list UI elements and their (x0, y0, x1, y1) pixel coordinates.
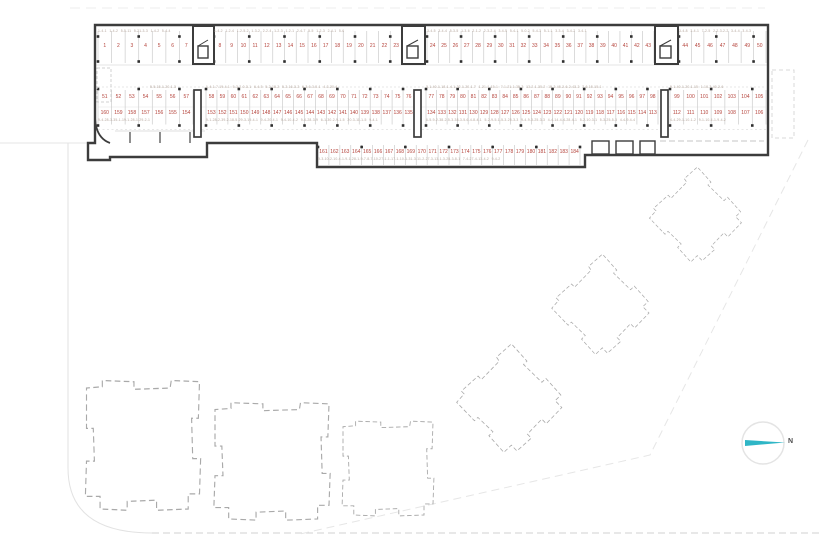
stall-number: 93 (595, 93, 606, 102)
column-dot (178, 35, 181, 38)
stall-number: 33 (529, 42, 540, 51)
stall-number: 3 (125, 42, 139, 51)
column-dot (402, 124, 405, 127)
parking-group: 2425262728293031323334353637383940414243 (427, 42, 654, 51)
stall-number: 137 (381, 109, 392, 118)
column-dot (178, 60, 181, 63)
stall-number: 149 (250, 109, 261, 118)
stall-number: 23 (390, 42, 402, 51)
column-dot (715, 35, 718, 38)
stall-number: 1 (98, 42, 112, 51)
stall-number: 99 (670, 93, 684, 102)
stall-number: 172 (438, 148, 449, 157)
stall-number: 6 (166, 42, 180, 51)
stall-number: 69 (326, 93, 337, 102)
column-dot (97, 124, 100, 127)
stall-number: 31 (506, 42, 517, 51)
column-dot (97, 60, 100, 63)
stall-number: 5 (152, 42, 166, 51)
site-plan: 1-4-1 1-4-2 5-5-11 5-21-3-3 1-4-2 5-4-4 … (0, 0, 825, 540)
column-dot (137, 60, 140, 63)
building-outline-1 (85, 380, 200, 510)
unit-codes-band: 5-5-15-1-20-1-3 (150, 85, 195, 90)
parking-group: 58596061626364656667686970717273747576 (206, 93, 414, 102)
stall-number: 171 (427, 148, 438, 157)
stall-number: 183 (558, 148, 569, 157)
stall-number: 94 (605, 93, 616, 102)
stall-number: 153 (206, 109, 217, 118)
stall-number: 114 (637, 109, 648, 118)
stall-number: 62 (250, 93, 261, 102)
column-dot (596, 35, 599, 38)
building-outline-5 (548, 253, 655, 360)
column-dot (248, 60, 251, 63)
stall-number: 170 (416, 148, 427, 157)
stall-number: 44 (679, 42, 691, 51)
stall-number: 19 (343, 42, 355, 51)
stall-number: 20 (355, 42, 367, 51)
stall-number: 61 (239, 93, 250, 102)
stall-number: 120 (574, 109, 585, 118)
stall-number: 53 (125, 93, 139, 102)
column-dot (615, 124, 618, 127)
stall-number: 22 (379, 42, 391, 51)
stall-number: 158 (125, 109, 139, 118)
stall-number: 129 (479, 109, 490, 118)
stall-number: 73 (370, 93, 381, 102)
north-label: N (788, 438, 793, 445)
unit-codes-band: 3-1-40-1-18-1-4-1-32-1-20-1-7 1-21-1-15-… (426, 85, 658, 90)
column-dot (389, 60, 392, 63)
stall-number: 87 (531, 93, 542, 102)
parking-group: 51525354555657 (98, 93, 193, 102)
stall-number: 25 (438, 42, 449, 51)
stall-number: 178 (504, 148, 515, 157)
parking-group: 891011121314151617181920212223 (214, 42, 402, 51)
stall-number: 150 (239, 109, 250, 118)
stall-number: 179 (515, 148, 526, 157)
parking-row-mid-lower: 160159158157156155154 153152151150149148… (0, 109, 825, 118)
stall-number: 98 (647, 93, 658, 102)
column-dot (715, 60, 718, 63)
stall-number: 49 (741, 42, 753, 51)
stall-number: 77 (426, 93, 437, 102)
stall-number: 176 (482, 148, 493, 157)
column-dot (137, 88, 140, 91)
parking-row-mid-upper: 51525354555657 5859606162636465666768697… (0, 93, 825, 102)
stall-number: 165 (362, 148, 373, 157)
column-dot (283, 35, 286, 38)
stall-number: 116 (616, 109, 627, 118)
stall-number: 160 (98, 109, 112, 118)
stall-number: 152 (217, 109, 228, 118)
stall-number: 111 (684, 109, 698, 118)
stall-number: 64 (272, 93, 283, 102)
stall-number: 107 (739, 109, 753, 118)
stall-number: 155 (166, 109, 180, 118)
stall-number: 70 (337, 93, 348, 102)
column-dot (669, 124, 672, 127)
column-dot (596, 60, 599, 63)
stall-number: 132 (447, 109, 458, 118)
stall-number: 174 (460, 148, 471, 157)
stall-number: 84 (500, 93, 511, 102)
stall-number: 36 (563, 42, 574, 51)
building-outline-2 (214, 403, 330, 520)
parking-group: 1611621631641651661671681691701711721731… (318, 148, 580, 157)
stall-number: 10 (238, 42, 250, 51)
column-dot (426, 35, 429, 38)
stall-number: 8 (214, 42, 226, 51)
stall-number: 56 (166, 93, 180, 102)
stall-number: 45 (691, 42, 703, 51)
stall-number: 145 (294, 109, 305, 118)
stall-number: 68 (316, 93, 327, 102)
column-dot (270, 124, 273, 127)
column-dot (283, 60, 286, 63)
stall-number: 39 (597, 42, 608, 51)
column-dot (97, 35, 100, 38)
stall-number: 123 (542, 109, 553, 118)
stall-number: 106 (752, 109, 766, 118)
stall-number: 151 (228, 109, 239, 118)
parking-group: 112111110109108107106 (670, 109, 766, 118)
column-dot (248, 35, 251, 38)
stall-number: 72 (359, 93, 370, 102)
stall-number: 161 (318, 148, 329, 157)
column-dot (178, 124, 181, 127)
stall-number: 37 (574, 42, 585, 51)
stall-number: 166 (373, 148, 384, 157)
stall-number: 15 (296, 42, 308, 51)
stall-number: 89 (553, 93, 564, 102)
column-dot (456, 124, 459, 127)
stall-number: 142 (326, 109, 337, 118)
unit-codes-band: 6-5-9-2-38-2-5-3-38-3-5-6-4-8-4-1 5-2-9-… (426, 118, 658, 123)
stall-number: 82 (479, 93, 490, 102)
stall-number: 78 (437, 93, 448, 102)
stall-number: 180 (526, 148, 537, 157)
stall-number: 83 (489, 93, 500, 102)
column-dot (630, 35, 633, 38)
stall-number: 167 (384, 148, 395, 157)
stall-number: 136 (392, 109, 403, 118)
stall-number: 173 (449, 148, 460, 157)
parking-row-bottom: 1611621631641651661671681691701711721731… (0, 148, 825, 157)
stall-number: 16 (308, 42, 320, 51)
stall-number: 86 (521, 93, 532, 102)
stall-number: 12 (261, 42, 273, 51)
column-dot (460, 35, 463, 38)
wall-ticks-left (130, 132, 190, 143)
stall-number: 104 (739, 93, 753, 102)
stall-number: 28 (472, 42, 483, 51)
unit-codes-band: 3-4-5 3-4-4 5-3-5 1-3-6 2-1-2 2-3-2-4 3-… (427, 29, 654, 34)
stall-number: 51 (98, 93, 112, 102)
north-arrow-icon (745, 440, 785, 446)
stall-number: 125 (521, 109, 532, 118)
unit-codes-band: 1-4-1 1-4-2 5-5-11 5-21-3-3 1-4-2 5-4-4 (98, 29, 193, 34)
stall-number: 32 (518, 42, 529, 51)
stall-number: 122 (553, 109, 564, 118)
stall-number: 168 (394, 148, 405, 157)
stall-number: 27 (461, 42, 472, 51)
unit-codes-band: 9-3-10-2-10-4-1-9-1-28-1-9-7-8-7-10-27-1… (318, 157, 580, 162)
stall-number: 117 (605, 109, 616, 118)
unit-codes-band: 9-4-28-3-35-1-19-1-28-1-29-2-1 (98, 118, 193, 123)
building-outlines (85, 166, 747, 520)
column-dot (520, 124, 523, 127)
stall-number: 14 (285, 42, 297, 51)
stall-number: 177 (493, 148, 504, 157)
stall-number: 95 (616, 93, 627, 102)
stall-number: 85 (510, 93, 521, 102)
stall-number: 175 (471, 148, 482, 157)
column-dot (710, 124, 713, 127)
stall-number: 59 (217, 93, 228, 102)
column-dot (562, 60, 565, 63)
stall-number: 52 (112, 93, 126, 102)
stall-number: 119 (584, 109, 595, 118)
stall-number: 24 (427, 42, 438, 51)
unit-codes-band: 1-4-1-7-19-4-1 5-3-2-0-3-1 6-4-5 5-2-18-… (206, 85, 414, 90)
column-dot (751, 124, 754, 127)
stall-number: 7 (179, 42, 193, 51)
parking-group: 1341331321311301291281271261251241231221… (426, 109, 658, 118)
parking-group: 1531521511501491481471461451441431421411… (206, 109, 414, 118)
stall-number: 109 (711, 109, 725, 118)
stall-number: 100 (684, 93, 698, 102)
unit-codes-band: 4-4-29-1-10-1-2 9-1-10-4-1-9-4-2 (670, 118, 766, 123)
unit-codes-band: 3-4-8 3-4-1 7-2-5 2-2-3-2-2 3-4-4 3-4-3 (679, 29, 766, 34)
stall-number: 128 (489, 109, 500, 118)
stall-number: 74 (381, 93, 392, 102)
stall-number: 47 (716, 42, 728, 51)
stall-number: 81 (468, 93, 479, 102)
stall-number: 13 (273, 42, 285, 51)
stall-number: 67 (305, 93, 316, 102)
stall-number: 80 (458, 93, 469, 102)
stall-number: 2 (112, 42, 126, 51)
stall-number: 79 (447, 93, 458, 102)
column-dot (528, 35, 531, 38)
unit-codes-band: 1-4-2 1-2-4 1-2-5-2 1-3-2 2-2-4 1-2-3 1-… (214, 29, 402, 34)
building-outline-4 (453, 343, 569, 459)
stall-number: 144 (305, 109, 316, 118)
stall-number: 58 (206, 93, 217, 102)
column-dot (551, 124, 554, 127)
parking-group: 44454647484950 (679, 42, 766, 51)
parking-group: 160159158157156155154 (98, 109, 193, 118)
stall-number: 11 (249, 42, 261, 51)
stall-number: 159 (112, 109, 126, 118)
building-outline-6 (646, 166, 747, 267)
stall-number: 112 (670, 109, 684, 118)
column-dot (137, 35, 140, 38)
column-dot (646, 124, 649, 127)
stall-number: 76 (403, 93, 414, 102)
stall-number: 146 (283, 109, 294, 118)
stall-number: 9 (226, 42, 238, 51)
stall-number: 126 (510, 109, 521, 118)
stall-number: 102 (711, 93, 725, 102)
column-dot (303, 124, 306, 127)
stall-number: 91 (574, 93, 585, 102)
stall-number: 133 (437, 109, 448, 118)
parking-row-top: 1234567 891011121314151617181920212223 2… (0, 42, 825, 51)
stall-number: 48 (729, 42, 741, 51)
stall-number: 157 (139, 109, 153, 118)
building-outline-3 (342, 421, 434, 516)
column-dot (426, 60, 429, 63)
stall-number: 96 (626, 93, 637, 102)
column-dot (562, 35, 565, 38)
column-dot (752, 60, 755, 63)
column-dot (318, 35, 321, 38)
stall-number: 18 (332, 42, 344, 51)
stall-number: 154 (179, 109, 193, 118)
stall-number: 38 (586, 42, 597, 51)
north-indicator (742, 422, 785, 464)
parking-group: 1234567 (98, 42, 193, 51)
stall-number: 101 (697, 93, 711, 102)
column-dot (354, 60, 357, 63)
column-dot (460, 60, 463, 63)
stall-number: 113 (647, 109, 658, 118)
stall-number: 97 (637, 93, 648, 102)
stall-number: 115 (626, 109, 637, 118)
stall-number: 162 (329, 148, 340, 157)
stall-number: 46 (704, 42, 716, 51)
stall-number: 143 (316, 109, 327, 118)
stall-number: 139 (359, 109, 370, 118)
stall-number: 26 (450, 42, 461, 51)
stall-number: 141 (337, 109, 348, 118)
stall-number: 148 (261, 109, 272, 118)
stall-number: 110 (697, 109, 711, 118)
stall-number: 140 (348, 109, 359, 118)
stall-number: 41 (620, 42, 631, 51)
column-dot (205, 124, 208, 127)
stall-number: 63 (261, 93, 272, 102)
stall-number: 43 (643, 42, 654, 51)
stall-number: 92 (584, 93, 595, 102)
stall-number: 156 (152, 109, 166, 118)
stall-number: 103 (725, 93, 739, 102)
stall-number: 118 (595, 109, 606, 118)
stall-number: 30 (495, 42, 506, 51)
stall-number: 4 (139, 42, 153, 51)
stall-number: 131 (458, 109, 469, 118)
column-dot (137, 124, 140, 127)
stall-number: 34 (540, 42, 551, 51)
parking-group: 99100101102103104105 (670, 93, 766, 102)
stall-number: 108 (725, 109, 739, 118)
column-dot (354, 35, 357, 38)
stall-number: 90 (563, 93, 574, 102)
unit-codes-band: 9-1-28-2-39-2-18-5-29-3-19-4-1 9-4-20-4-… (206, 118, 414, 123)
unit-codes-band: 9-1-40-1-20-1-15 1-10-2-40-2-6 (670, 85, 766, 90)
stall-number: 124 (531, 109, 542, 118)
stall-number: 57 (179, 93, 193, 102)
column-dot (583, 124, 586, 127)
stall-number: 169 (405, 148, 416, 157)
column-dot (488, 124, 491, 127)
stall-number: 50 (754, 42, 766, 51)
stall-number: 65 (283, 93, 294, 102)
column-dot (369, 124, 372, 127)
stall-number: 75 (392, 93, 403, 102)
floorplan-linework (0, 0, 825, 540)
stall-number: 42 (631, 42, 642, 51)
column-dot (336, 124, 339, 127)
stall-number: 138 (370, 109, 381, 118)
column-dot (494, 35, 497, 38)
stall-number: 135 (403, 109, 414, 118)
column-dot (752, 35, 755, 38)
stall-number: 105 (752, 93, 766, 102)
parking-group: 7778798081828384858687888990919293949596… (426, 93, 658, 102)
stall-number: 147 (272, 109, 283, 118)
column-dot (528, 60, 531, 63)
column-dot (318, 60, 321, 63)
stall-number: 181 (536, 148, 547, 157)
column-dot (425, 124, 428, 127)
column-dot (630, 60, 633, 63)
stall-number: 134 (426, 109, 437, 118)
stall-number: 60 (228, 93, 239, 102)
stall-number: 29 (484, 42, 495, 51)
column-dot (389, 35, 392, 38)
stall-number: 35 (552, 42, 563, 51)
stall-number: 88 (542, 93, 553, 102)
stall-number: 55 (152, 93, 166, 102)
stall-number: 21 (367, 42, 379, 51)
stall-number: 71 (348, 93, 359, 102)
stall-number: 40 (609, 42, 620, 51)
column-dot (494, 60, 497, 63)
stall-number: 164 (351, 148, 362, 157)
stall-number: 163 (340, 148, 351, 157)
stall-number: 130 (468, 109, 479, 118)
stall-number: 66 (294, 93, 305, 102)
column-dot (238, 124, 241, 127)
stall-number: 184 (569, 148, 580, 157)
stall-number: 121 (563, 109, 574, 118)
stall-number: 54 (139, 93, 153, 102)
stall-number: 17 (320, 42, 332, 51)
stall-number: 127 (500, 109, 511, 118)
stall-number: 182 (547, 148, 558, 157)
